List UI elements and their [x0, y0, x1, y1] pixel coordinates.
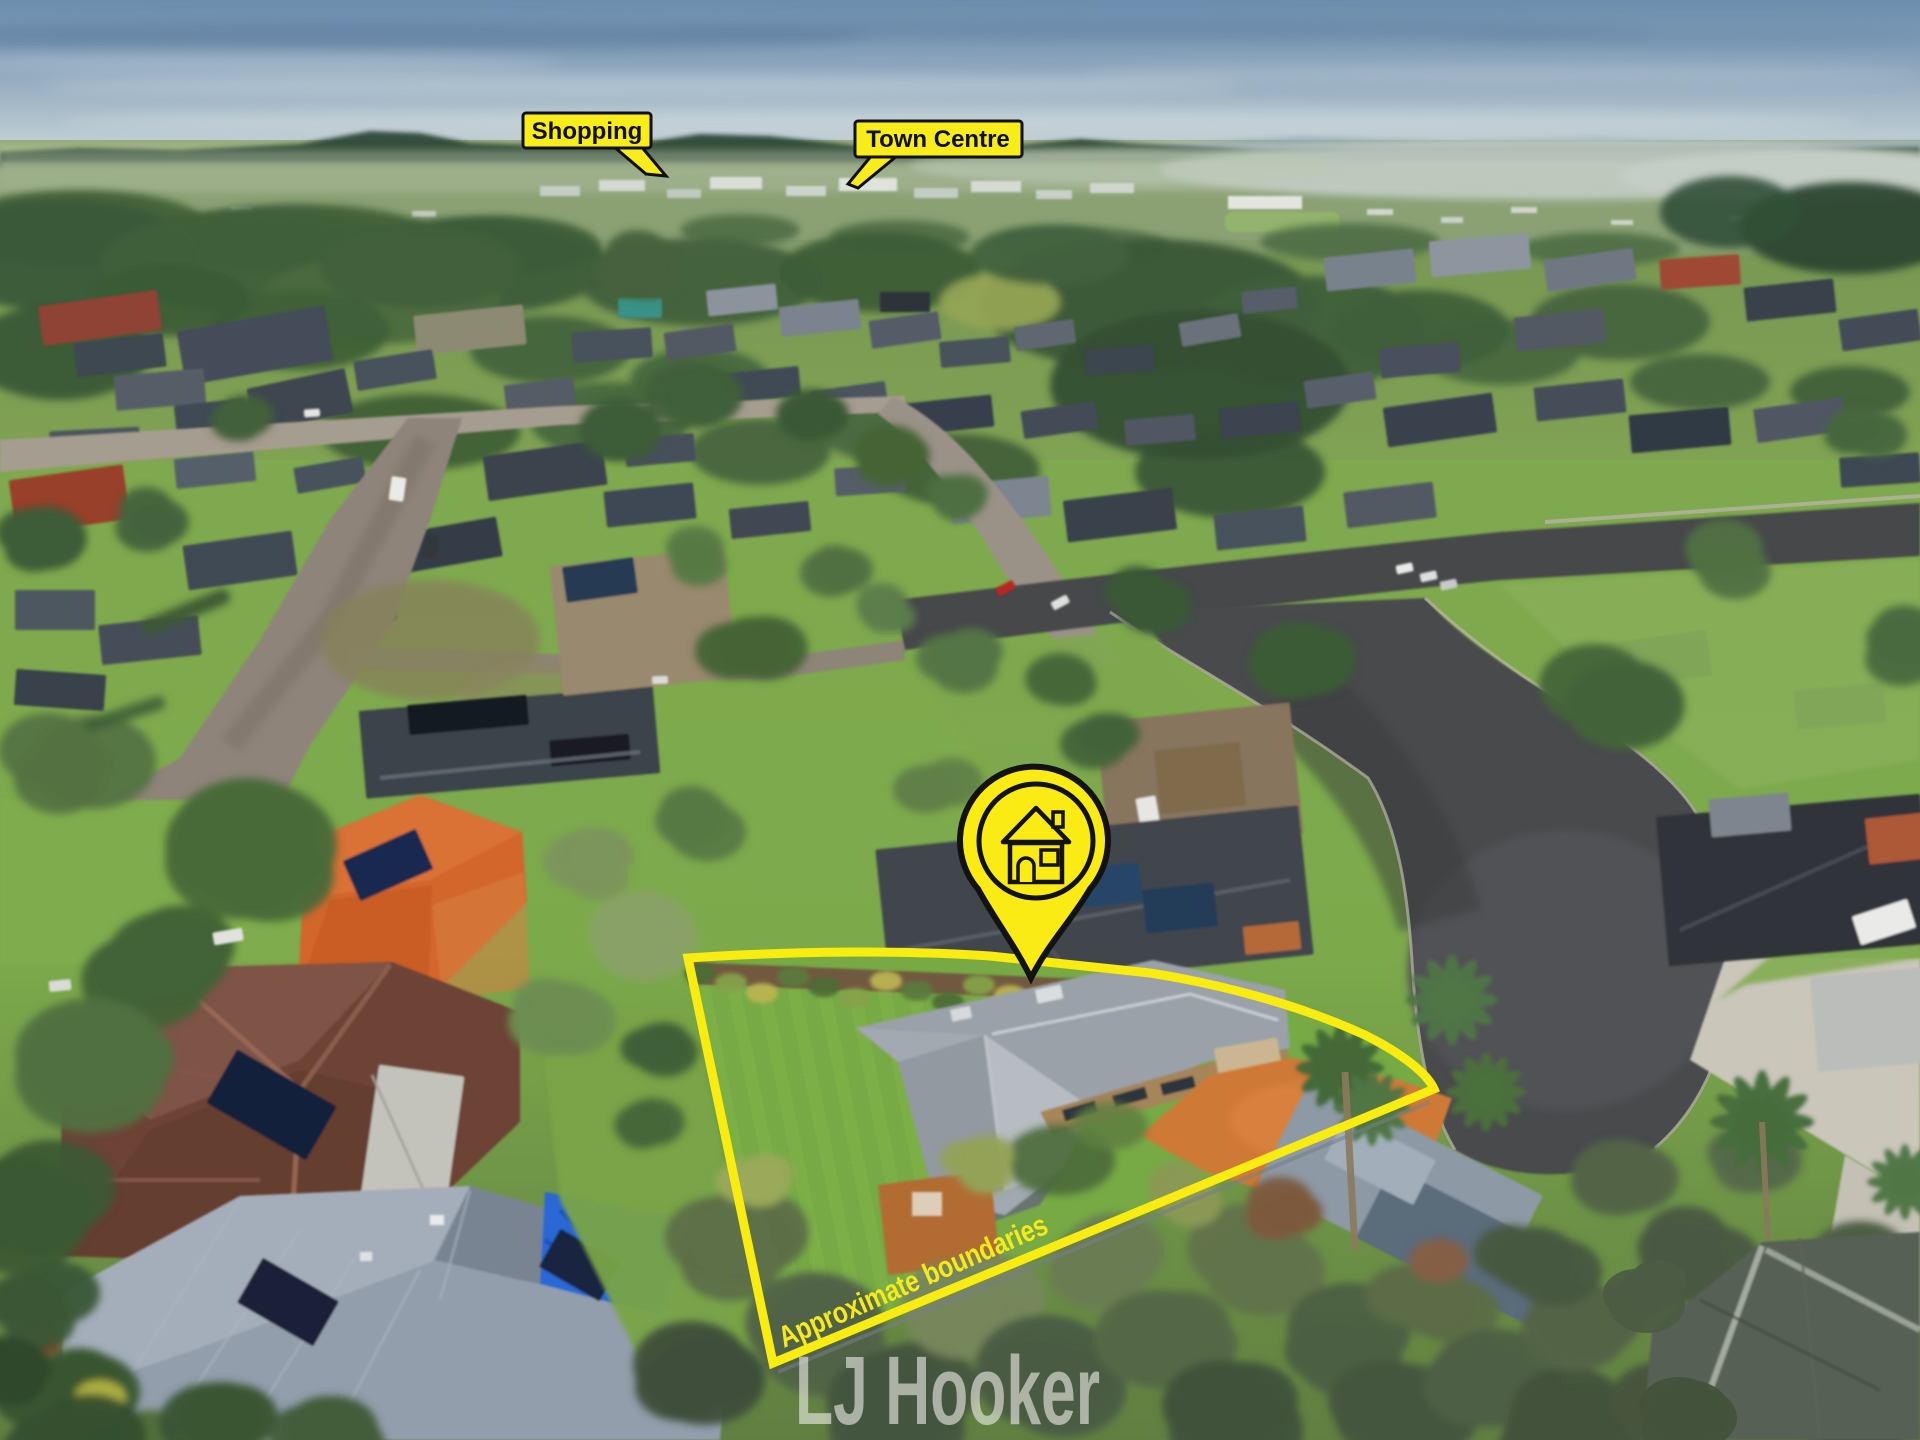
svg-text:LJ Hooker: LJ Hooker [795, 1336, 1100, 1440]
svg-text:Shopping: Shopping [532, 118, 643, 145]
svg-text:Town Centre: Town Centre [866, 126, 1010, 153]
